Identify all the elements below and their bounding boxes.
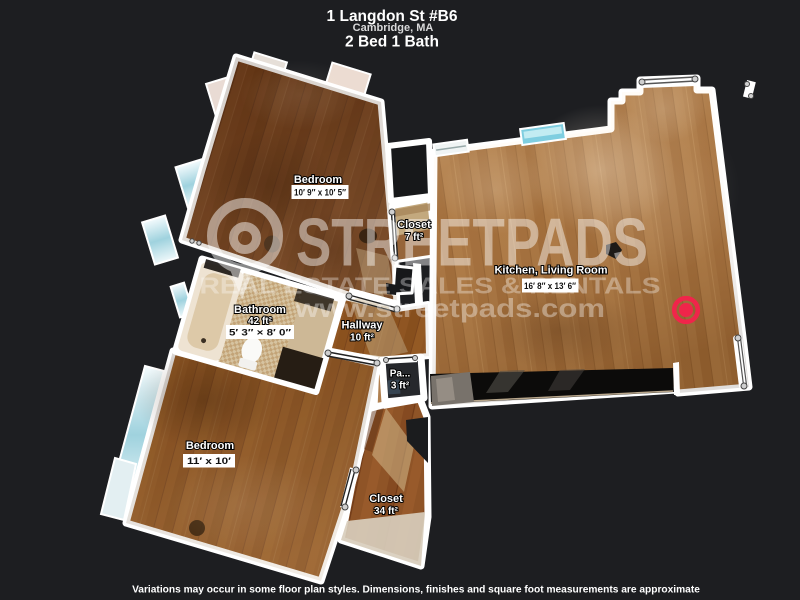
svg-text:Closet: Closet xyxy=(397,219,431,231)
svg-text:Kitchen, Living Room: Kitchen, Living Room xyxy=(494,265,607,277)
svg-text:Closet: Closet xyxy=(369,493,403,505)
svg-text:10 ft²: 10 ft² xyxy=(350,333,375,344)
svg-text:Pa...: Pa... xyxy=(390,369,411,380)
svg-text:5′ 3″ × 8′ 0″: 5′ 3″ × 8′ 0″ xyxy=(229,328,292,338)
svg-text:3 ft²: 3 ft² xyxy=(391,381,410,392)
svg-text:Hallway: Hallway xyxy=(342,320,384,332)
svg-text:11′ x 10′: 11′ x 10′ xyxy=(187,456,231,466)
svg-text:www.streetpads.com: www.streetpads.com xyxy=(294,293,605,323)
svg-text:10′ 9″ x 10′ 5″: 10′ 9″ x 10′ 5″ xyxy=(294,188,347,198)
svg-text:16′ 8″ x 13′ 6″: 16′ 8″ x 13′ 6″ xyxy=(524,281,577,291)
svg-text:7 ft²: 7 ft² xyxy=(405,232,424,243)
svg-text:Bedroom: Bedroom xyxy=(186,440,235,452)
svg-text:Variations may occur in some f: Variations may occur in some floor plan … xyxy=(132,585,700,596)
svg-text:2 Bed 1 Bath: 2 Bed 1 Bath xyxy=(345,34,439,51)
svg-text:34 ft²: 34 ft² xyxy=(374,506,399,517)
svg-text:Bathroom: Bathroom xyxy=(234,304,286,316)
svg-text:Bedroom: Bedroom xyxy=(294,174,343,186)
svg-text:Cambridge, MA: Cambridge, MA xyxy=(353,22,434,34)
